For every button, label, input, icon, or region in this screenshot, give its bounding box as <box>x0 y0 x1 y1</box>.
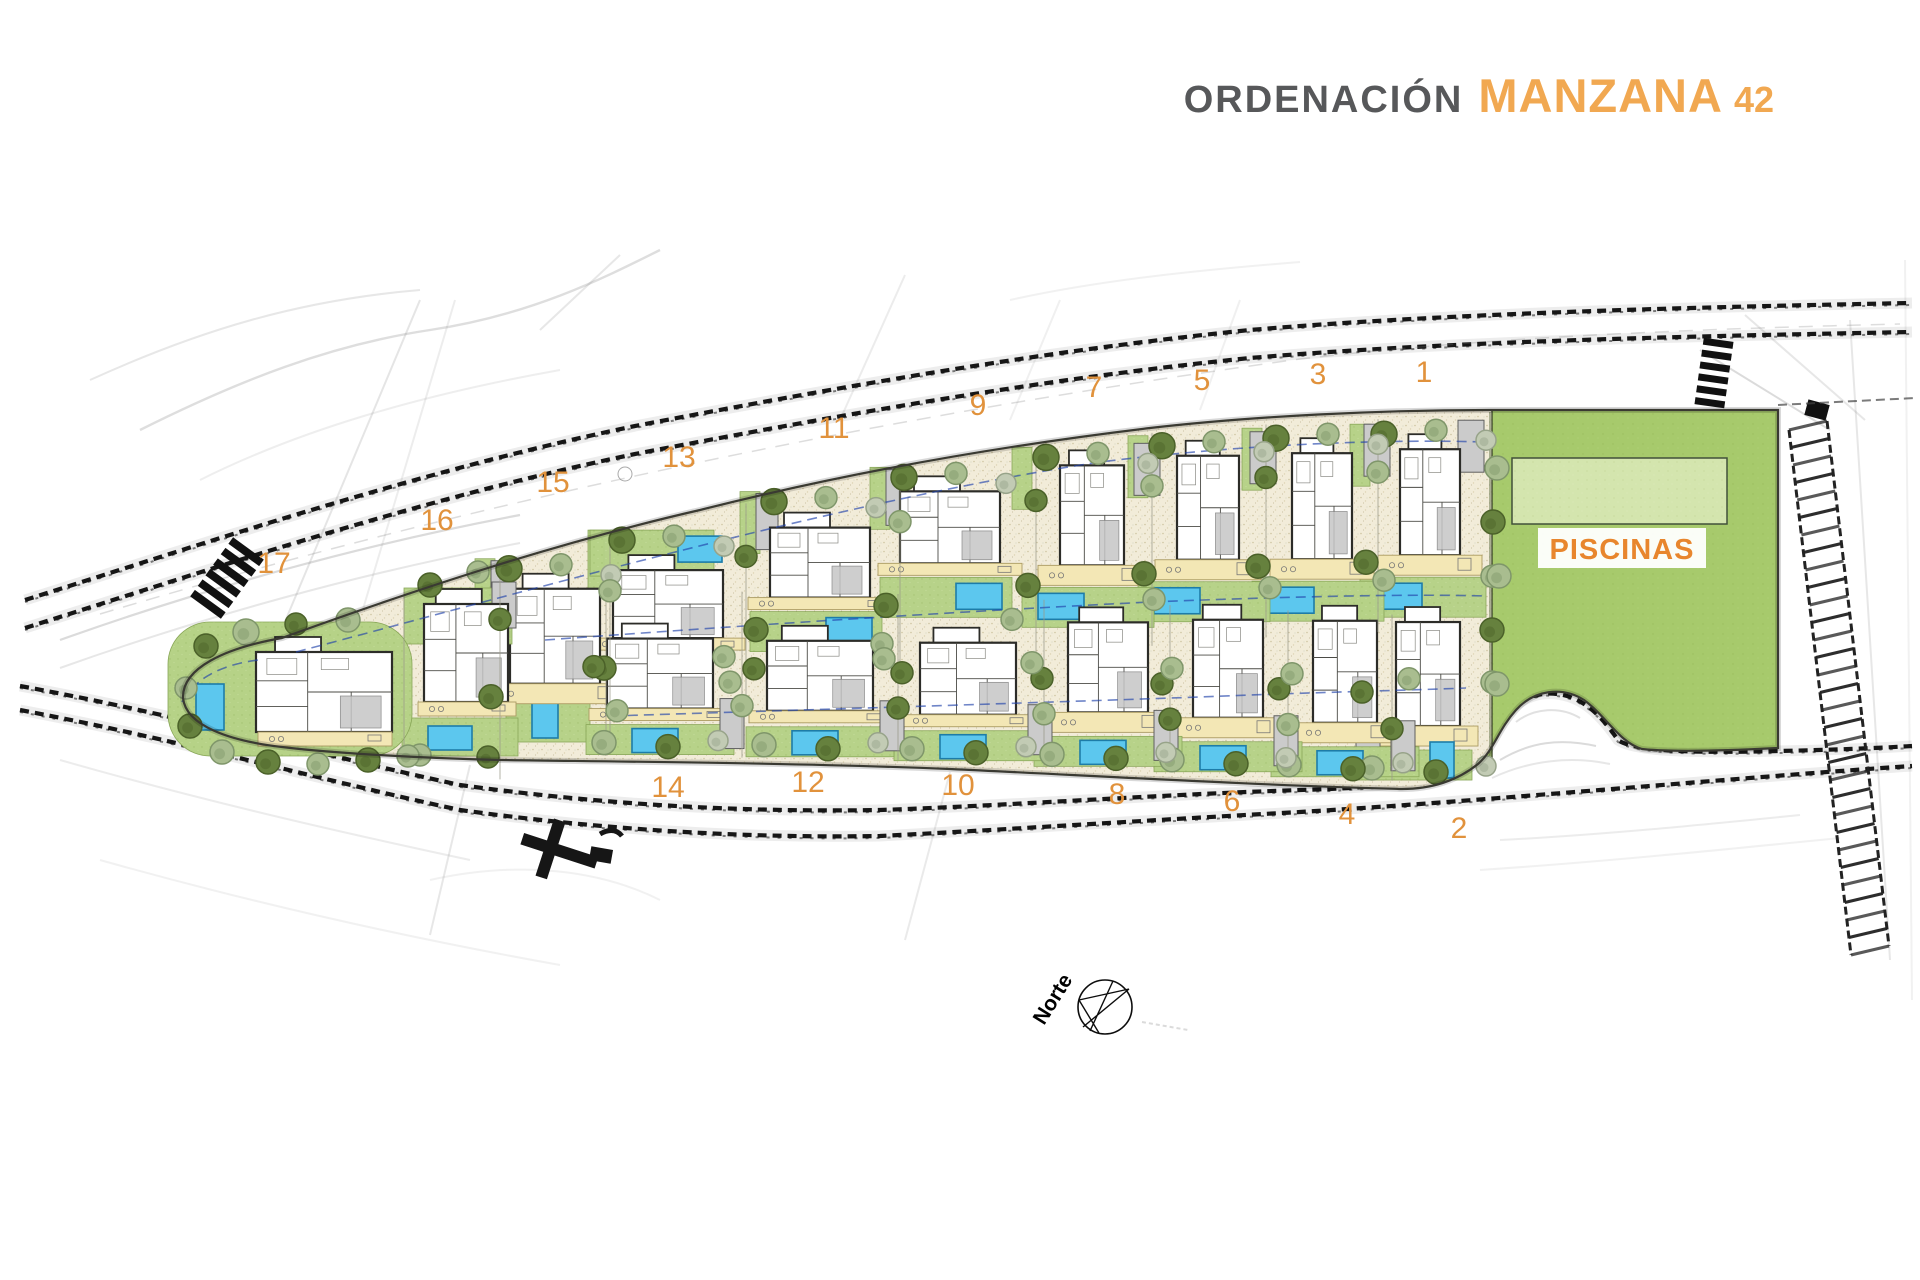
tree-texture <box>1402 675 1412 685</box>
tree <box>713 646 735 668</box>
villa-roof-shade <box>1437 508 1455 550</box>
tree <box>1476 430 1496 450</box>
villa-footprint <box>1177 441 1239 560</box>
tree-texture <box>891 705 901 715</box>
tree <box>1156 742 1176 762</box>
villa-roof-shade <box>1215 513 1234 555</box>
tree-texture <box>214 748 225 759</box>
tree <box>583 656 605 678</box>
terrace <box>902 715 1034 727</box>
tree <box>868 733 888 753</box>
plot-number: 1 <box>1416 356 1433 389</box>
tree-texture <box>1428 768 1439 779</box>
page-title: ORDENACIÓN MANZANA 42 <box>1184 68 1774 123</box>
survey-line <box>840 275 905 420</box>
embankment-rung <box>1841 859 1879 868</box>
tree-texture <box>360 756 371 767</box>
tree-texture <box>747 666 757 676</box>
tree-texture <box>896 473 908 485</box>
tree-texture <box>1044 751 1055 762</box>
tree-texture <box>717 653 727 663</box>
villa-roof-shade <box>1118 672 1142 708</box>
tree-texture <box>1377 577 1387 587</box>
villa-roof-shade <box>1436 679 1455 721</box>
tree-texture <box>1160 749 1169 758</box>
tree <box>1276 748 1296 768</box>
embankment-rung <box>1799 509 1837 518</box>
embankment-rung <box>1791 439 1829 448</box>
tree-texture <box>877 656 887 666</box>
tree-texture <box>870 505 879 514</box>
tree-texture <box>182 722 193 733</box>
embankment-rung <box>1839 841 1877 850</box>
embankment-rung <box>1803 544 1841 553</box>
tree <box>731 695 753 717</box>
tree-texture <box>1250 563 1261 574</box>
tree <box>1016 737 1036 757</box>
tree <box>1246 554 1270 578</box>
embankment-rung <box>1818 666 1856 675</box>
plot-number: 17 <box>257 547 290 580</box>
tree <box>1368 434 1388 454</box>
survey-line <box>1500 742 1596 760</box>
title-block-name: MANZANA <box>1478 68 1723 123</box>
pool <box>428 726 472 750</box>
tree <box>1143 588 1165 610</box>
tree-texture <box>723 679 733 689</box>
embankment-rung <box>1845 894 1883 903</box>
tree <box>1087 442 1109 464</box>
tree-texture <box>1165 665 1175 675</box>
villa-roof-shade <box>1329 511 1347 553</box>
tree <box>1317 423 1339 445</box>
villa-footprint <box>1396 607 1460 726</box>
tree-texture <box>1154 442 1166 454</box>
pool <box>956 583 1002 609</box>
plot-number: 6 <box>1224 785 1241 818</box>
embankment-rung <box>1843 876 1881 885</box>
embankment-rung <box>1851 946 1889 955</box>
plot-number: 15 <box>536 466 569 499</box>
embankment-rung <box>1834 806 1872 815</box>
tree <box>550 554 572 576</box>
embankment-rung <box>1832 789 1870 798</box>
villa-roof-shade <box>833 679 865 707</box>
tree-texture <box>554 561 564 571</box>
survey-line <box>1516 710 1580 722</box>
tree <box>1398 668 1420 690</box>
tree <box>816 737 840 761</box>
tree-texture <box>766 498 778 510</box>
tree <box>1025 489 1047 511</box>
tree <box>1033 703 1055 725</box>
tree <box>708 731 728 751</box>
embankment-rung <box>1795 474 1833 483</box>
tree <box>1354 550 1378 574</box>
tree-texture <box>1038 453 1050 465</box>
plot-number: 16 <box>420 504 453 537</box>
tree <box>1224 752 1248 776</box>
tree <box>887 697 909 719</box>
tree <box>1351 681 1373 703</box>
tree-texture <box>289 621 299 631</box>
tree <box>1141 475 1163 497</box>
tree-texture <box>1480 437 1489 446</box>
villa-roof-shade <box>962 531 992 560</box>
tree-texture <box>1491 572 1502 583</box>
tree-texture <box>1280 755 1289 764</box>
tree <box>489 608 511 630</box>
tree <box>1259 577 1281 599</box>
embankment-rung <box>1816 649 1854 658</box>
plot-number: 3 <box>1310 358 1327 391</box>
tree <box>900 737 924 761</box>
crosswalk-stripe <box>1699 362 1730 373</box>
plot-number: 2 <box>1451 812 1468 845</box>
tree <box>744 618 768 642</box>
tree-texture <box>1371 469 1381 479</box>
tree-texture <box>1147 596 1157 606</box>
embankment-rung <box>1793 456 1831 465</box>
tree <box>194 634 218 658</box>
tree-texture <box>1037 710 1047 720</box>
villa-roof-shade <box>980 682 1009 711</box>
tree <box>1485 672 1509 696</box>
north-compass <box>1078 980 1188 1034</box>
embankment-rung <box>1824 719 1862 728</box>
tree <box>1485 456 1509 480</box>
tree-texture <box>1025 659 1035 669</box>
villa-roof-shade <box>1100 520 1119 560</box>
survey-line <box>90 290 420 380</box>
piscinas-label: PISCINAS <box>1538 528 1706 568</box>
tree <box>1159 708 1181 730</box>
tree-texture <box>1207 438 1217 448</box>
title-block-number: 42 <box>1734 79 1774 121</box>
tree <box>1381 718 1403 740</box>
villa-roof-shade <box>340 696 381 728</box>
tree-texture <box>1484 626 1495 637</box>
tree <box>1161 657 1183 679</box>
survey-line <box>1492 760 1610 778</box>
tree-texture <box>1091 450 1101 460</box>
tree <box>889 511 911 533</box>
tree-texture <box>1489 680 1500 691</box>
tree <box>874 593 898 617</box>
villa-roof-shade <box>673 677 705 705</box>
tree-texture <box>493 616 503 626</box>
terrace <box>749 711 891 723</box>
villa-footprint <box>1400 434 1460 555</box>
tree <box>1132 562 1156 586</box>
tree-texture <box>895 669 905 679</box>
tree-texture <box>667 533 677 543</box>
tree <box>815 487 837 509</box>
tree-texture <box>1259 474 1269 484</box>
tree-texture <box>1385 725 1395 735</box>
survey-line <box>1480 838 1840 870</box>
villa-footprint <box>1193 605 1263 718</box>
survey-line <box>200 370 560 480</box>
tree-texture <box>739 553 749 563</box>
pool <box>826 618 872 644</box>
tree-texture <box>1142 460 1151 469</box>
tree <box>996 473 1016 493</box>
villa-roof-shade <box>1236 674 1257 713</box>
embankment-rung <box>1797 491 1835 500</box>
tree <box>1373 569 1395 591</box>
embankment-rung <box>1837 824 1875 833</box>
tree-texture <box>610 707 620 717</box>
tree-texture <box>614 536 626 548</box>
tree <box>714 536 734 556</box>
tree <box>1393 753 1413 773</box>
tree-texture <box>311 761 321 771</box>
tree-texture <box>1155 680 1165 690</box>
tree-texture <box>1364 764 1375 775</box>
embankment-rung <box>1820 684 1858 693</box>
tree-texture <box>1372 441 1381 450</box>
tree-texture <box>1263 584 1273 594</box>
tree-texture <box>748 626 759 637</box>
tree-texture <box>1397 760 1406 769</box>
survey-line <box>1905 260 1912 1000</box>
tree-texture <box>904 745 915 756</box>
tree <box>945 462 967 484</box>
tree-texture <box>1485 518 1496 529</box>
tree-texture <box>1108 755 1119 766</box>
north-label: Norte <box>1029 970 1078 1029</box>
tree <box>964 741 988 765</box>
plot-number: 10 <box>941 769 974 802</box>
tree-texture <box>198 642 209 653</box>
plot-number: 9 <box>970 389 987 422</box>
villa-footprint <box>1060 450 1124 565</box>
plot-number: 12 <box>791 766 824 799</box>
tree <box>1021 652 1043 674</box>
tree <box>606 700 628 722</box>
tree-texture <box>1020 744 1029 753</box>
tree <box>752 733 776 757</box>
tree <box>1040 742 1064 766</box>
plot-number: 4 <box>1339 798 1356 831</box>
tree-texture <box>968 749 979 760</box>
villa-footprint <box>1292 438 1352 559</box>
embankment-rung <box>1814 631 1852 640</box>
tree-texture <box>260 758 271 769</box>
tree-texture <box>1029 497 1039 507</box>
piscinas-label-text: PISCINAS <box>1550 534 1695 566</box>
tree-texture <box>756 741 767 752</box>
tree <box>743 658 765 680</box>
tree <box>307 753 329 775</box>
tree-texture <box>1345 765 1356 776</box>
villa-footprint <box>1313 606 1377 723</box>
title-section: ORDENACIÓN <box>1184 79 1464 122</box>
tree <box>663 525 685 547</box>
embankment-rung <box>1849 929 1887 938</box>
plot-number: 8 <box>1109 778 1126 811</box>
tree-texture <box>1136 570 1147 581</box>
tree-texture <box>483 693 494 704</box>
tree-texture <box>1429 427 1439 437</box>
tree-texture <box>820 745 831 756</box>
tree-texture <box>1281 721 1291 731</box>
survey-line <box>540 255 620 330</box>
tree <box>256 750 280 774</box>
tree-texture <box>1489 464 1500 475</box>
tree <box>479 685 503 709</box>
tree <box>592 731 616 755</box>
compass-circle <box>1078 980 1132 1034</box>
tree <box>656 735 680 759</box>
tree <box>210 740 234 764</box>
tree <box>1277 713 1299 735</box>
tree <box>1487 564 1511 588</box>
tree <box>1138 453 1158 473</box>
tree <box>735 545 757 567</box>
tree <box>1016 573 1040 597</box>
plot-number: 7 <box>1086 371 1103 404</box>
terrace <box>748 598 892 610</box>
tree-texture <box>893 518 903 528</box>
tree <box>719 671 741 693</box>
tree <box>1001 608 1023 630</box>
tree-texture <box>1000 480 1009 489</box>
embankment-rung <box>1806 561 1844 570</box>
tree-texture <box>1258 449 1267 458</box>
crosswalk-stripe <box>1694 397 1725 408</box>
crosswalk <box>1694 338 1733 409</box>
tree-texture <box>1321 431 1331 441</box>
piscinas-area <box>1478 410 1778 766</box>
crosswalk-stripe <box>1696 385 1727 396</box>
tree-texture <box>949 470 959 480</box>
tree <box>1255 466 1277 488</box>
tree-texture <box>1285 670 1295 680</box>
tree-texture <box>718 543 727 552</box>
tree-texture <box>1163 716 1173 726</box>
tree <box>891 662 913 684</box>
survey-line <box>1500 815 1800 840</box>
crosswalk-stripe <box>1698 373 1729 384</box>
tree-texture <box>1228 760 1239 771</box>
tree <box>599 580 621 602</box>
survey-line <box>140 250 660 430</box>
tree <box>1341 757 1365 781</box>
tree <box>1425 419 1447 441</box>
embankment-rung <box>1810 596 1848 605</box>
embankment-rung <box>1801 526 1839 535</box>
tree-texture <box>238 628 250 640</box>
plot-number: 11 <box>818 412 849 445</box>
tree-texture <box>1005 616 1015 626</box>
site-plan: 1357911131516172468101214 PISCINAS Norte <box>0 0 1920 1280</box>
villa-roof-shade <box>832 566 862 594</box>
embankment-rung <box>1822 701 1860 710</box>
tree <box>866 498 886 518</box>
tree <box>1281 663 1303 685</box>
tree-texture <box>660 743 671 754</box>
tree-texture <box>878 602 889 613</box>
tree <box>1367 461 1389 483</box>
tree-texture <box>712 738 721 747</box>
tree-texture <box>1358 559 1369 570</box>
tree <box>1033 444 1059 470</box>
villa-footprint <box>256 637 392 732</box>
survey-line <box>100 860 560 965</box>
tree-texture <box>1035 675 1045 685</box>
plot-number: 13 <box>662 441 695 474</box>
tree-texture <box>1145 483 1155 493</box>
tree <box>1480 618 1504 642</box>
survey-glyph-hook <box>600 830 622 836</box>
embankment-rung <box>1808 579 1846 588</box>
plot-number: 14 <box>651 771 684 804</box>
tree <box>1104 746 1128 770</box>
embankment-rung <box>1847 911 1885 920</box>
tree-texture <box>596 739 607 750</box>
communal-pool-pad <box>1512 458 1727 524</box>
tree-texture <box>819 494 829 504</box>
plot-number: 5 <box>1194 364 1211 397</box>
tree-texture <box>603 588 613 598</box>
tree-texture <box>1272 685 1282 695</box>
tree <box>873 648 895 670</box>
tree-texture <box>1020 582 1031 593</box>
plan-canvas: 1357911131516172468101214 PISCINAS Norte… <box>0 0 1920 1280</box>
villa-roof-shade <box>681 608 714 635</box>
tree <box>1254 442 1274 462</box>
tree-texture <box>735 702 745 712</box>
tree-texture <box>872 740 881 749</box>
survey-line <box>1010 262 1300 300</box>
tree-texture <box>587 663 597 673</box>
villa-footprint <box>1068 607 1148 712</box>
tree <box>1203 431 1225 453</box>
tree <box>1481 510 1505 534</box>
tree-texture <box>1355 689 1365 699</box>
embankment-rung <box>1812 614 1850 623</box>
